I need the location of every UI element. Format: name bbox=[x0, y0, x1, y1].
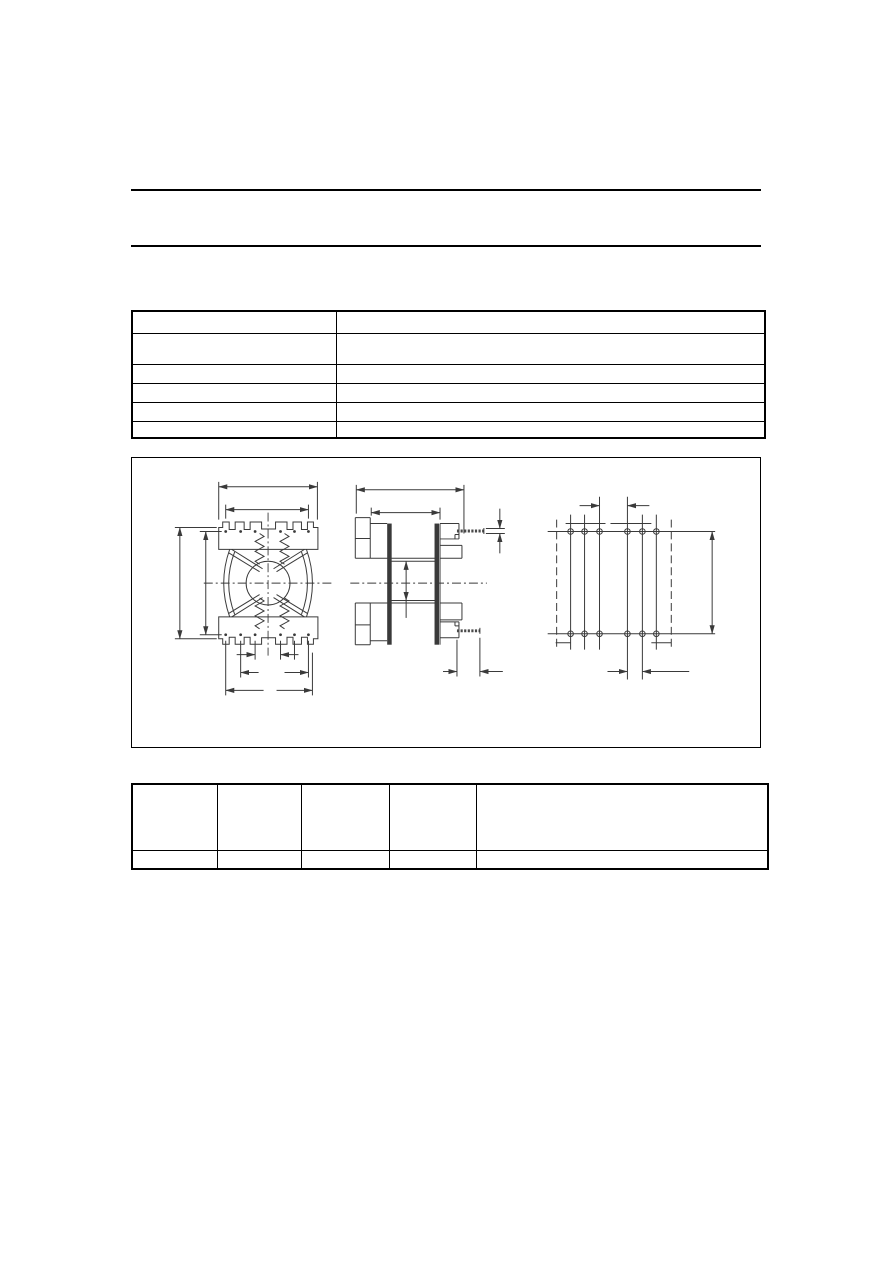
table-row bbox=[132, 383, 765, 402]
table-row bbox=[132, 402, 765, 421]
side-view-dimensions bbox=[356, 485, 505, 677]
table-cell bbox=[132, 383, 337, 402]
right-flange-plate bbox=[435, 524, 439, 645]
table-cell bbox=[337, 311, 766, 333]
table-cell bbox=[132, 402, 337, 421]
table-cell bbox=[132, 784, 218, 850]
table-cell bbox=[302, 850, 390, 869]
table-cell bbox=[337, 402, 766, 421]
body-outline-solid bbox=[556, 524, 672, 643]
table-cell bbox=[218, 784, 302, 850]
front-view-dimensions bbox=[175, 482, 318, 696]
table-row bbox=[132, 850, 768, 869]
spec-table bbox=[131, 310, 766, 439]
table-cell bbox=[218, 850, 302, 869]
table-cell bbox=[132, 364, 337, 383]
solder-pin-grid bbox=[568, 529, 659, 637]
dimension-drawing-figure bbox=[131, 457, 761, 748]
left-flange-blocks bbox=[355, 518, 387, 645]
table-cell bbox=[132, 850, 218, 869]
side-view-drawing bbox=[350, 485, 505, 677]
pin-row-lines bbox=[548, 531, 715, 633]
table-row bbox=[132, 311, 765, 333]
pin-column-lines bbox=[571, 497, 657, 680]
bottom-view-drawing bbox=[548, 497, 715, 680]
left-flange-plate bbox=[387, 524, 391, 645]
datasheet-page: { "page": { "background": "#ffffff", "no… bbox=[0, 0, 893, 1263]
table-cell bbox=[132, 311, 337, 333]
table-cell bbox=[302, 784, 390, 850]
dims-table bbox=[131, 783, 769, 870]
header-bottom-rule bbox=[131, 245, 761, 247]
centerlines bbox=[204, 513, 333, 656]
table-cell bbox=[337, 364, 766, 383]
table-cell bbox=[337, 383, 766, 402]
solder-pins-side bbox=[457, 528, 484, 634]
table-cell bbox=[477, 784, 769, 850]
table-cell bbox=[337, 333, 766, 364]
table-row bbox=[132, 364, 765, 383]
table-cell bbox=[337, 421, 766, 438]
table-row bbox=[132, 421, 765, 438]
front-view-drawing bbox=[175, 482, 332, 696]
table-cell bbox=[477, 850, 769, 869]
header-top-rule bbox=[131, 189, 761, 191]
spring-symbols bbox=[255, 533, 289, 628]
coil-former-drawing bbox=[132, 458, 760, 747]
winding-window bbox=[355, 558, 439, 603]
table-row bbox=[132, 784, 768, 850]
table-cell bbox=[132, 333, 337, 364]
table-row bbox=[132, 333, 765, 364]
table-cell bbox=[132, 421, 337, 438]
body-outline-dashed bbox=[557, 520, 672, 648]
table-cell bbox=[390, 850, 477, 869]
right-flange-blocks bbox=[440, 524, 462, 645]
table-cell bbox=[390, 784, 477, 850]
page-title bbox=[131, 196, 761, 240]
